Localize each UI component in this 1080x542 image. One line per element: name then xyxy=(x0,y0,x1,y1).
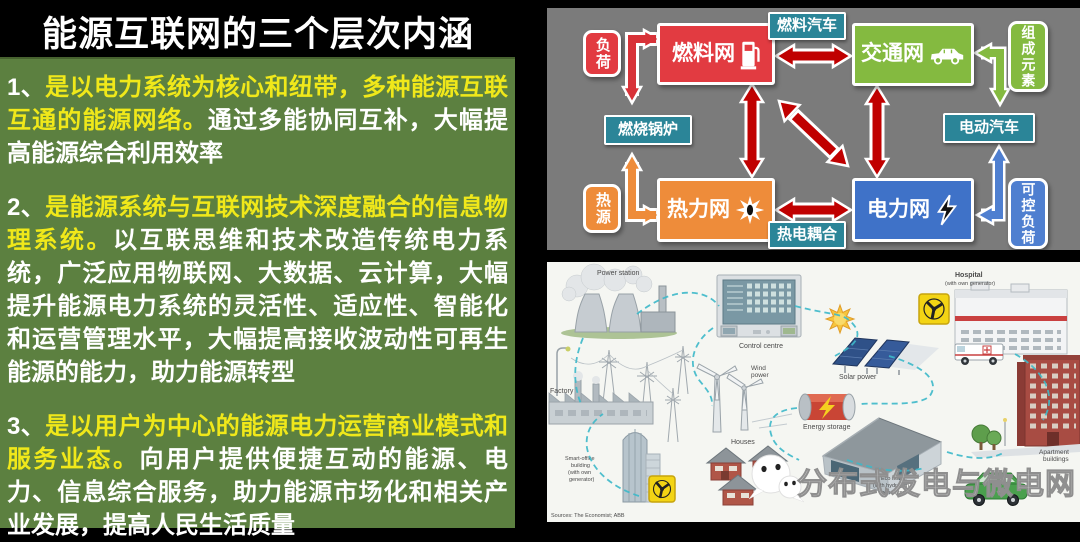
node-load: 负荷 xyxy=(583,30,621,77)
watermark-text: 分布式发电与微电网 xyxy=(797,468,1076,501)
lightning-icon xyxy=(935,194,959,226)
node-components: 组成元素 xyxy=(1008,21,1048,92)
energy-storage-drawing xyxy=(799,394,855,420)
office-generator-sign-icon xyxy=(649,476,675,502)
node-power-network: 电力网 xyxy=(852,178,974,242)
factory-label: Factory xyxy=(550,388,574,395)
paragraph-1: 1、是以电力系统为核心和纽带，多种能源互联互通的能源网络。通过多能协同互补，大幅… xyxy=(7,71,508,170)
page-title: 能源互联网的三个层次内涵 xyxy=(0,6,516,57)
car-icon xyxy=(929,45,965,65)
smart-office-label-4: generator) xyxy=(569,477,595,483)
node-fuel-vehicle: 燃料汽车 xyxy=(768,12,846,40)
node-heat-network: 热力网 xyxy=(657,178,775,242)
smart-office-label-3: (with own xyxy=(568,470,591,476)
smart-grid-illustration: Power station xyxy=(547,262,1080,522)
houses-label: Houses xyxy=(731,439,755,446)
paragraph-3: 3、是以用户为中心的能源电力运营商业模式和服务业态。向用户提供便捷互动的能源、电… xyxy=(7,410,508,542)
paragraph-2-number: 2、 xyxy=(7,194,45,221)
paragraph-2: 2、是能源系统与互联网技术深度融合的信息物理系统。以互联思维和技术改造传统电力系… xyxy=(7,191,508,389)
node-heat-source: 热源 xyxy=(583,184,621,233)
energy-network-diagram: 负荷 燃料网 燃料汽车 交通网 组成元素 燃烧锅炉 电动汽车 热源 xyxy=(547,8,1080,250)
control-centre-drawing xyxy=(717,275,801,337)
wind-power-label-2: power xyxy=(751,372,770,379)
paragraph-3-number: 3、 xyxy=(7,413,45,440)
smart-office-label-2: building xyxy=(571,463,590,469)
power-station-label: Power station xyxy=(597,270,640,277)
fuel-pump-icon xyxy=(740,38,760,70)
node-heat-network-label: 热力网 xyxy=(667,199,730,221)
node-fuel-network-label: 燃料网 xyxy=(672,43,735,65)
definition-panel: 1、是以电力系统为核心和纽带，多种能源互联互通的能源网络。通过多能协同互补，大幅… xyxy=(0,57,515,528)
energy-storage-label: Energy storage xyxy=(803,424,851,431)
hospital-generator-sign-icon xyxy=(919,294,949,324)
wind-power-label-1: Wind xyxy=(751,365,766,372)
node-thermo-electric-coupling: 热电耦合 xyxy=(768,221,846,249)
node-combustion-boiler: 燃烧锅炉 xyxy=(604,115,692,145)
heat-burst-icon xyxy=(735,195,765,225)
node-electric-vehicle: 电动汽车 xyxy=(943,113,1035,143)
node-transport-network: 交通网 xyxy=(852,23,974,86)
node-controllable-load: 可控负荷 xyxy=(1008,178,1048,249)
node-fuel-network: 燃料网 xyxy=(657,23,775,85)
hospital-label: Hospital xyxy=(955,272,983,279)
smart-grid-svg: Power station xyxy=(547,262,1080,522)
solar-power-label: Solar power xyxy=(839,374,877,381)
node-power-network-label: 电力网 xyxy=(867,199,930,221)
control-centre-label: Control centre xyxy=(739,343,783,350)
apartment-label-1: Apartment xyxy=(1039,449,1069,456)
slide: 能源互联网的三个层次内涵 1、是以电力系统为核心和纽带，多种能源互联互通的能源网… xyxy=(0,0,1080,528)
hospital-sublabel: (with own generator) xyxy=(945,281,995,287)
apartment-label-2: buildings xyxy=(1043,456,1069,463)
sources-label: Sources: The Economist; ABB xyxy=(551,513,625,519)
node-transport-network-label: 交通网 xyxy=(861,43,924,65)
sun-icon xyxy=(826,305,854,333)
paragraph-1-number: 1、 xyxy=(7,74,45,101)
